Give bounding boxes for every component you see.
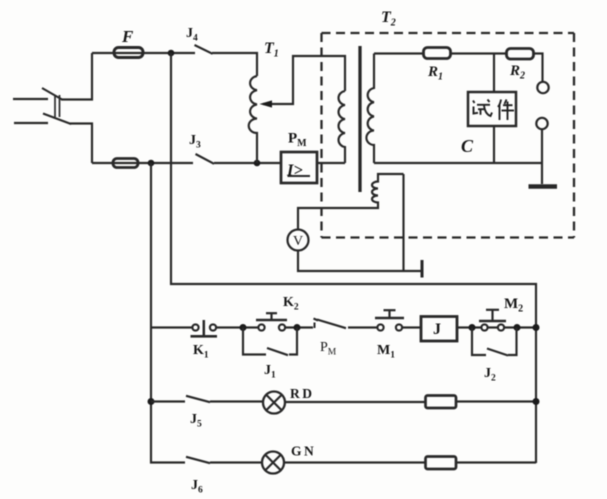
svg-text:GN: GN bbox=[291, 444, 316, 459]
svg-text:M2: M2 bbox=[504, 296, 523, 315]
svg-text:R2: R2 bbox=[509, 63, 525, 82]
svg-text:F: F bbox=[121, 27, 134, 46]
svg-text:V: V bbox=[293, 234, 303, 249]
svg-text:C: C bbox=[461, 136, 474, 156]
svg-text:J1: J1 bbox=[264, 363, 276, 381]
svg-text:R1: R1 bbox=[427, 64, 443, 83]
svg-text:K1: K1 bbox=[193, 343, 209, 361]
svg-text:PM: PM bbox=[320, 340, 337, 358]
svg-text:T2: T2 bbox=[381, 9, 396, 29]
svg-text:PM: PM bbox=[288, 131, 307, 150]
svg-text:J2: J2 bbox=[484, 366, 496, 384]
svg-text:J6: J6 bbox=[191, 478, 203, 496]
svg-text:I>: I> bbox=[286, 161, 303, 180]
svg-text:K2: K2 bbox=[283, 295, 299, 313]
svg-text:M1: M1 bbox=[377, 343, 395, 361]
svg-text:T1: T1 bbox=[264, 40, 279, 60]
svg-text:J: J bbox=[433, 321, 441, 338]
svg-text:RD: RD bbox=[290, 386, 315, 401]
svg-text:J4: J4 bbox=[186, 26, 198, 44]
svg-text:J5: J5 bbox=[190, 412, 202, 430]
svg-text:J3: J3 bbox=[189, 133, 201, 151]
